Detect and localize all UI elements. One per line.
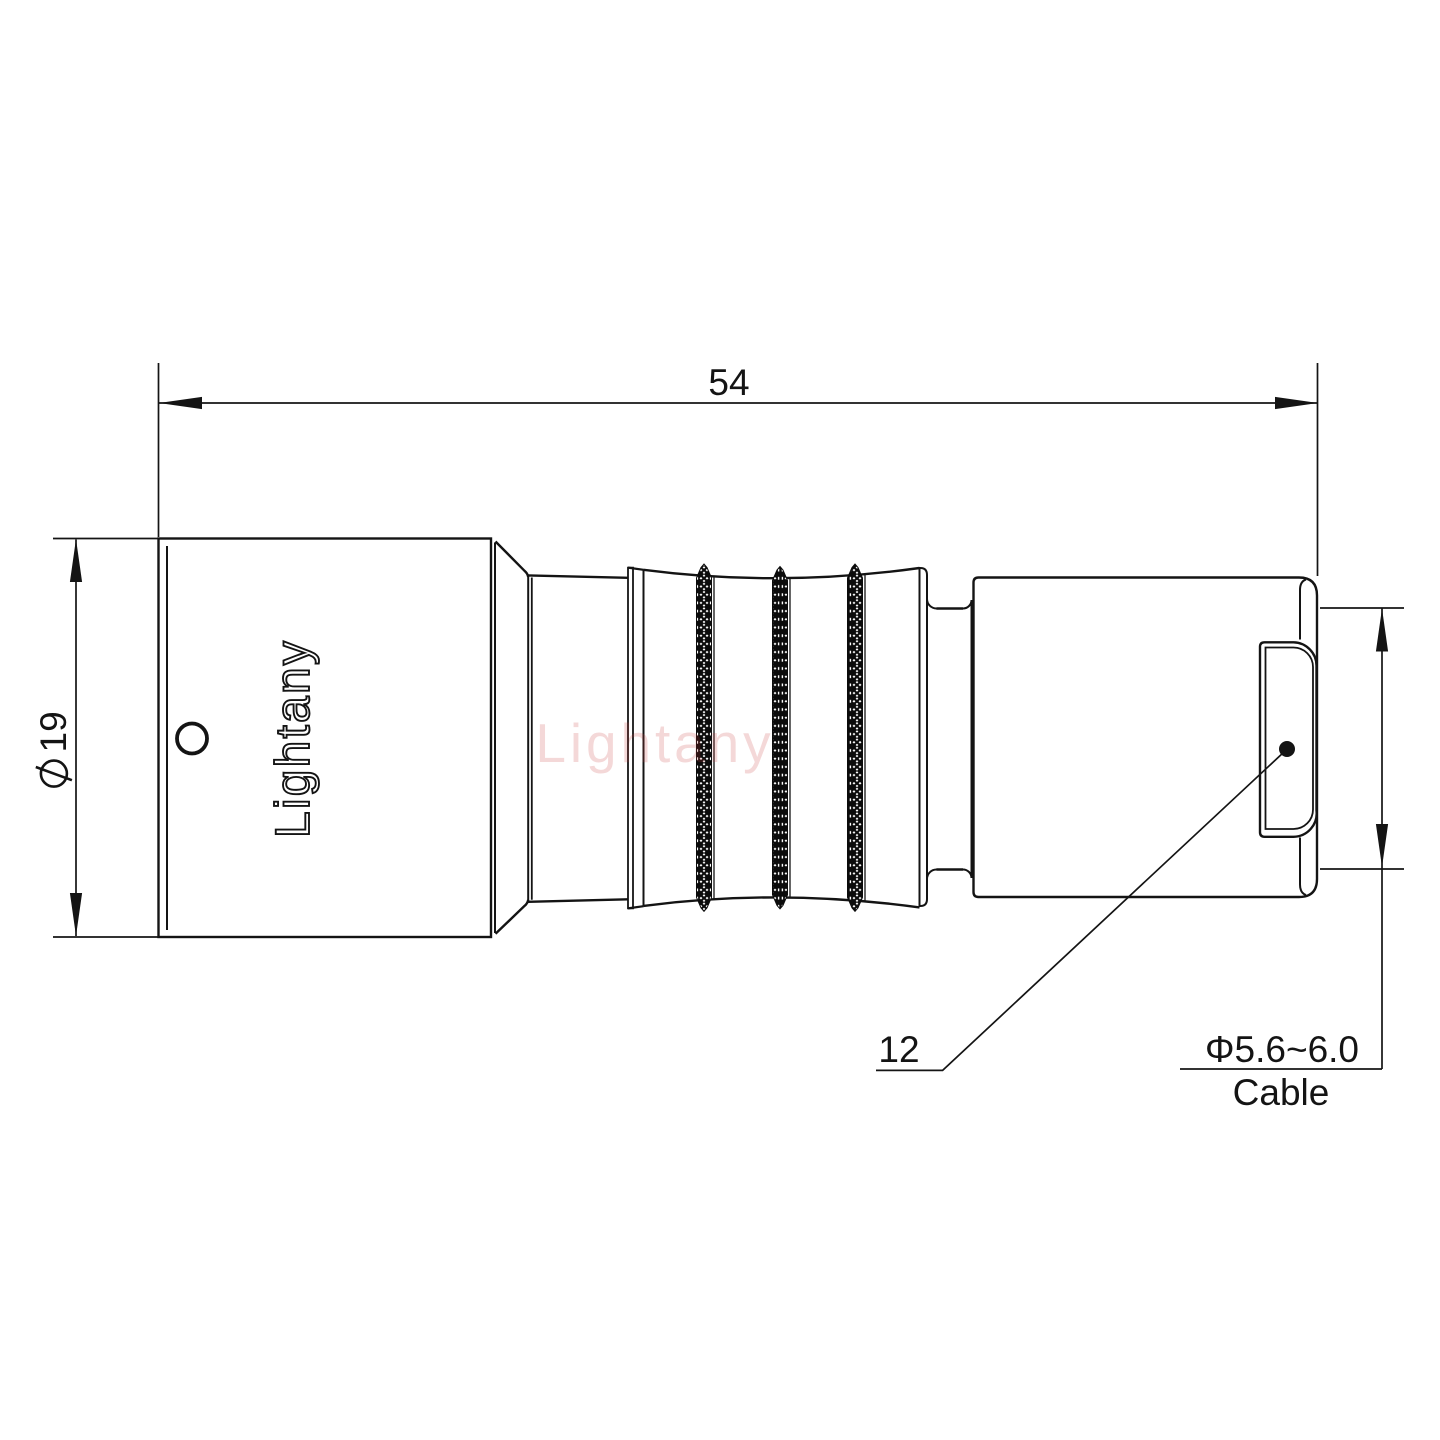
svg-text:Φ5.6~6.0: Φ5.6~6.0 [1205,1029,1359,1070]
svg-text:Lightany: Lightany [535,712,774,774]
svg-text:12: 12 [878,1029,919,1070]
svg-text:Cable: Cable [1233,1072,1330,1113]
svg-text:54: 54 [708,362,749,403]
svg-text:Lightany: Lightany [267,639,320,838]
svg-text:19: 19 [33,711,74,752]
